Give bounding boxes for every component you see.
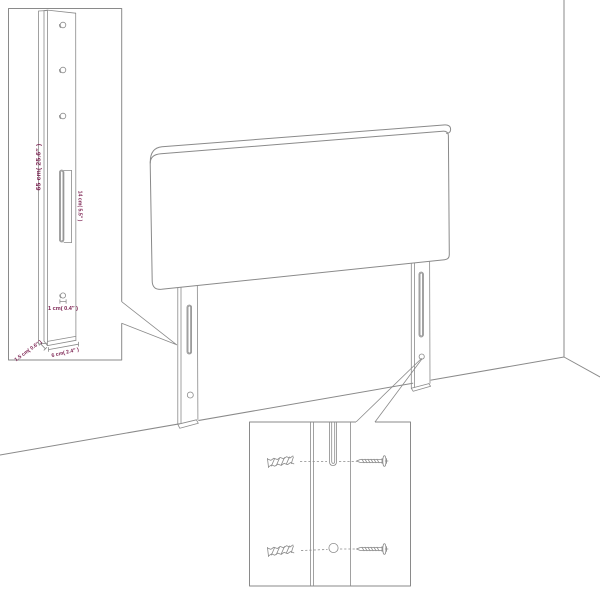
- mounting-detail-callout: [250, 422, 411, 586]
- headboard: [150, 125, 450, 428]
- dimension-label-slot: 14 cm( 5.5″ ): [77, 191, 83, 222]
- headboard-leg-right: [411, 254, 430, 392]
- diagram-canvas: 65 cm( 25.6″ ) 14 cm( 5.5″ ) 1 cm( 0.4″ …: [0, 0, 600, 600]
- headboard-panel: [150, 125, 450, 289]
- callout-lines-leg-detail: [122, 302, 177, 345]
- floor-wall-line-right: [564, 357, 600, 377]
- leg-detail-callout: 65 cm( 25.6″ ) 14 cm( 5.5″ ) 1 cm( 0.4″ …: [9, 9, 122, 364]
- dimension-label-height: 65 cm( 25.6″ ): [36, 144, 43, 191]
- headboard-assembly-diagram: 65 cm( 25.6″ ) 14 cm( 5.5″ ) 1 cm( 0.4″ …: [0, 0, 600, 600]
- dimension-label-hole: 1 cm( 0.4″ ): [48, 306, 78, 312]
- callout-lines-mounting-detail: [356, 359, 422, 422]
- callout-box-border: [250, 422, 411, 586]
- headboard-leg-left: [178, 279, 199, 429]
- panel-front-face: [150, 131, 449, 289]
